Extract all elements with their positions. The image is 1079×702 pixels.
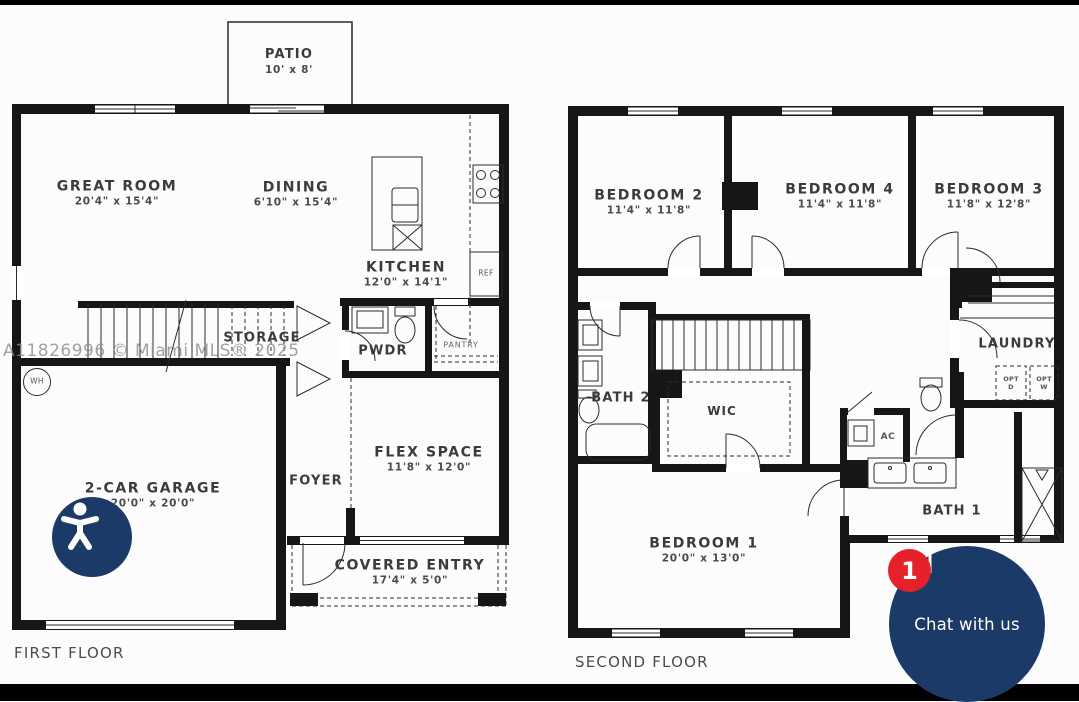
bedroom-1-label: BEDROOM 1 20'0" x 13'0" [649, 535, 758, 564]
second-floor-title: SECOND FLOOR [575, 653, 709, 671]
bath-1-label: BATH 1 [922, 505, 981, 520]
ac-label: AC [881, 432, 896, 442]
bedroom-4-label: BEDROOM 4 11'4" x 11'8" [785, 181, 894, 210]
foyer-label: FOYER [289, 475, 343, 490]
laundry-label: LAUNDRY [978, 338, 1055, 353]
covered-entry-label: COVERED ENTRY 17'4" x 5'0" [335, 557, 486, 586]
accessibility-button[interactable] [52, 497, 132, 577]
great-room-label: GREAT ROOM 20'4" x 15'4" [57, 178, 178, 207]
bedroom-2-label: BEDROOM 2 11'4" x 11'8" [594, 187, 703, 216]
refrigerator-label: REF [478, 270, 493, 279]
chat-notification-badge: 1 [888, 549, 931, 592]
first-floor-title: FIRST FLOOR [14, 644, 125, 662]
chat-button-label: Chat with us [914, 615, 1020, 634]
patio-label: PATIO 10' x 8' [265, 48, 313, 76]
kitchen-label: KITCHEN 12'0" x 14'1" [364, 259, 448, 288]
bedroom-3-label: BEDROOM 3 11'8" x 12'8" [934, 181, 1043, 210]
flex-space-label: FLEX SPACE 11'8" x 12'0" [374, 444, 483, 473]
accessibility-icon [52, 497, 108, 553]
opt-dryer-label: OPT D [1003, 376, 1019, 392]
powder-room-label: PWDR [358, 345, 407, 360]
mls-watermark: A11826996 © Miami MLS® 2025 [3, 341, 300, 361]
bath-2-label: BATH 2 [591, 392, 650, 407]
dining-label: DINING 6'10" x 15'4" [254, 179, 338, 208]
wic-label: WIC [707, 405, 737, 419]
water-heater-label: WH [30, 378, 44, 387]
pantry-label: PANTRY [443, 340, 478, 349]
opt-washer-label: OPT W [1036, 376, 1052, 392]
